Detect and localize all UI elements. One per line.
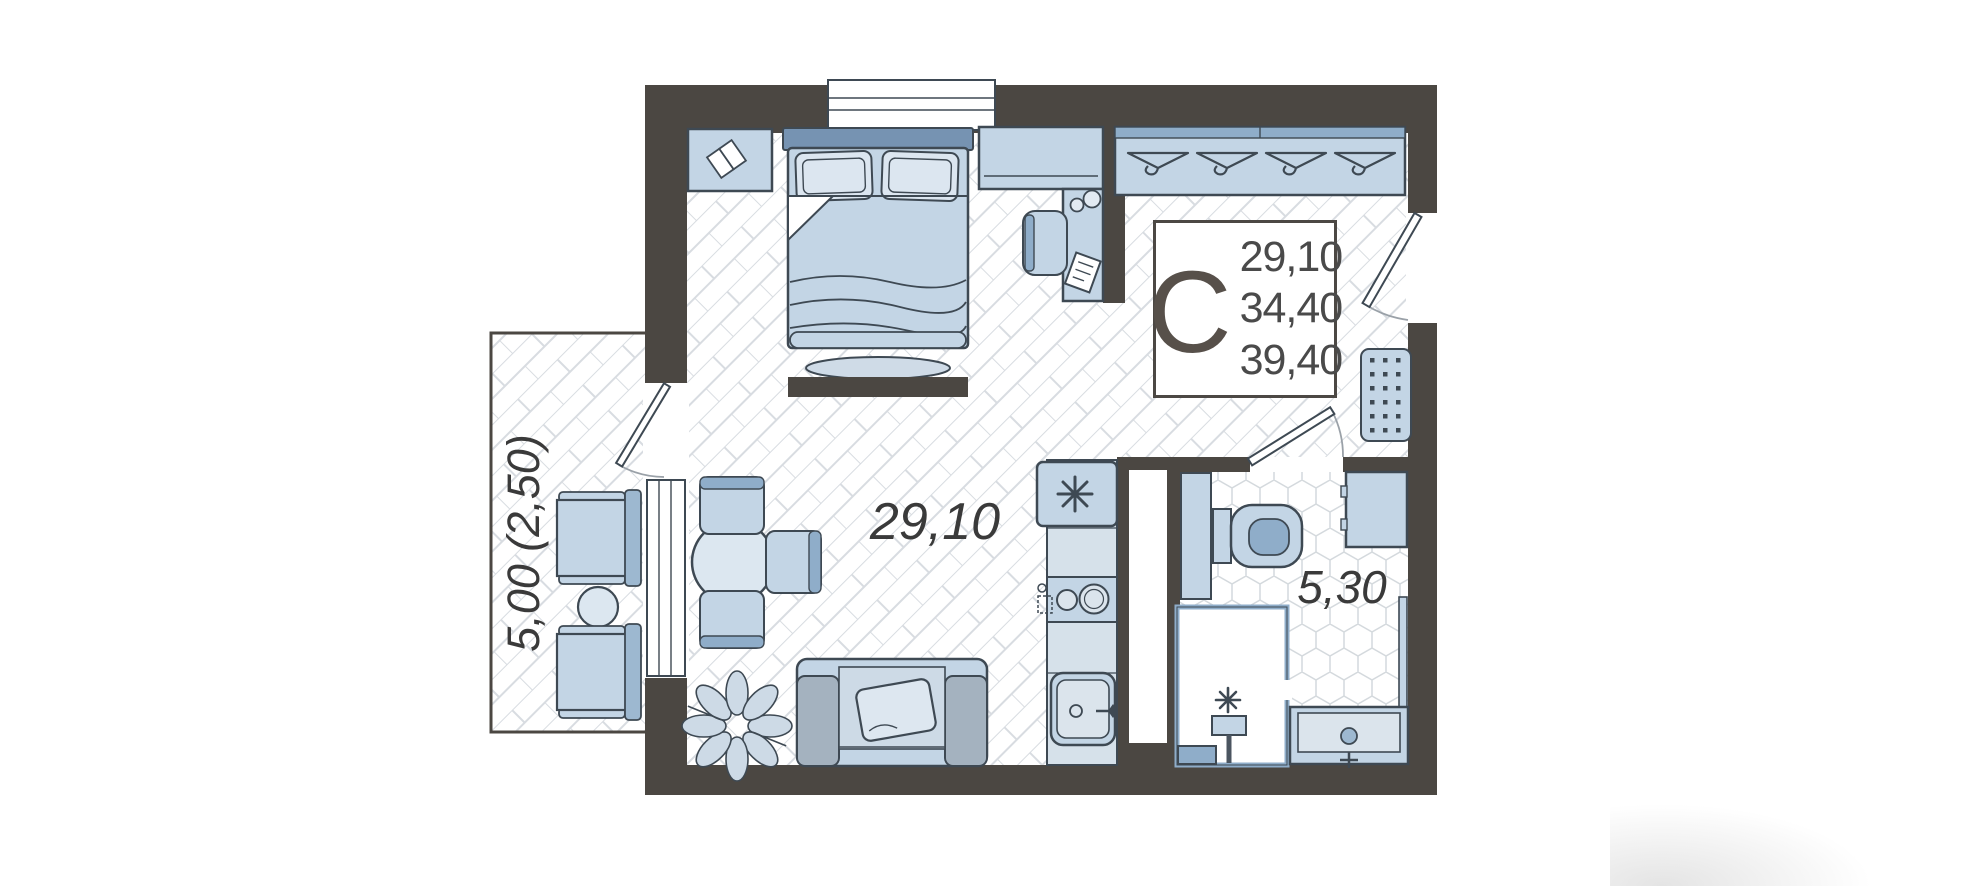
main-room-area-label: 29,10 [845,492,1025,552]
toilet [1213,505,1302,567]
tv-console [788,377,968,397]
fridge [1037,462,1117,526]
unit-type-letter: С [1148,254,1232,370]
double-bed [783,128,973,379]
vanity-sink [1290,707,1408,768]
living-area-value: 29,10 [1240,232,1343,284]
balcony-window [647,480,685,676]
balcony-armchair-2 [557,624,641,720]
tall-cabinet [1181,473,1211,599]
window [828,80,995,130]
snowflake-icon [1058,477,1092,511]
dining-chair-top [700,477,764,534]
sofa-pillow [855,678,937,742]
total-area-value: 39,40 [1240,335,1343,387]
balcony-area-label: 5,00 (2,50) [498,383,550,703]
shower [1177,607,1292,765]
floor-plan-screenshot: 29,10 5,30 5,00 (2,50) С 29,10 34,40 39,… [0,0,1980,886]
watermark-smudge [1610,795,1900,886]
hob [1038,577,1117,622]
shower-head-icon [1216,688,1240,712]
apartment-area-value: 34,40 [1240,283,1343,335]
sofa [797,659,987,766]
dining-chair-bottom [700,591,764,648]
floor-plan-drawing [0,0,1980,886]
wardrobe [1115,127,1405,195]
balcony-side-table [578,587,618,627]
balcony-armchair-1 [557,490,641,586]
dining-chair-right [766,531,821,593]
nightstand [688,129,772,191]
desk-chair [1023,211,1067,275]
radiator [1361,349,1411,441]
apartment-info-box: С 29,10 34,40 39,40 [1153,220,1337,398]
washing-machine [1341,472,1407,547]
kitchen-sink [1051,673,1118,745]
unit-areas: 29,10 34,40 39,40 [1240,232,1343,387]
bathroom-area-label: 5,30 [1272,560,1412,614]
